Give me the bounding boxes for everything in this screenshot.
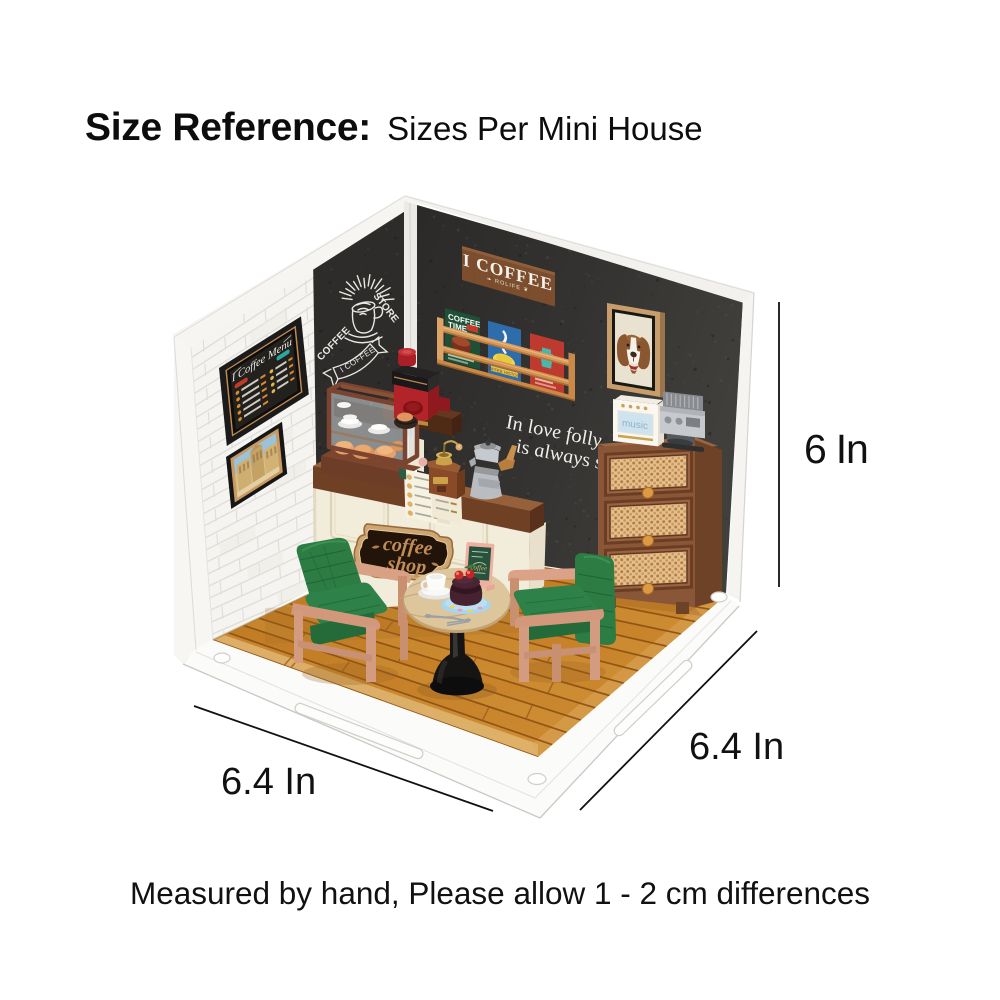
svg-text:Measured by hand, Please allow: Measured by hand, Please allow 1 - 2 cm … [130, 875, 870, 911]
svg-text:6.4 In: 6.4 In [221, 761, 316, 803]
svg-text:6.4 In: 6.4 In [689, 726, 784, 768]
svg-text:6 In: 6 In [804, 426, 868, 472]
svg-text:Size Reference: Sizes Per Mini: Size Reference: Sizes Per Mini House [85, 106, 703, 149]
